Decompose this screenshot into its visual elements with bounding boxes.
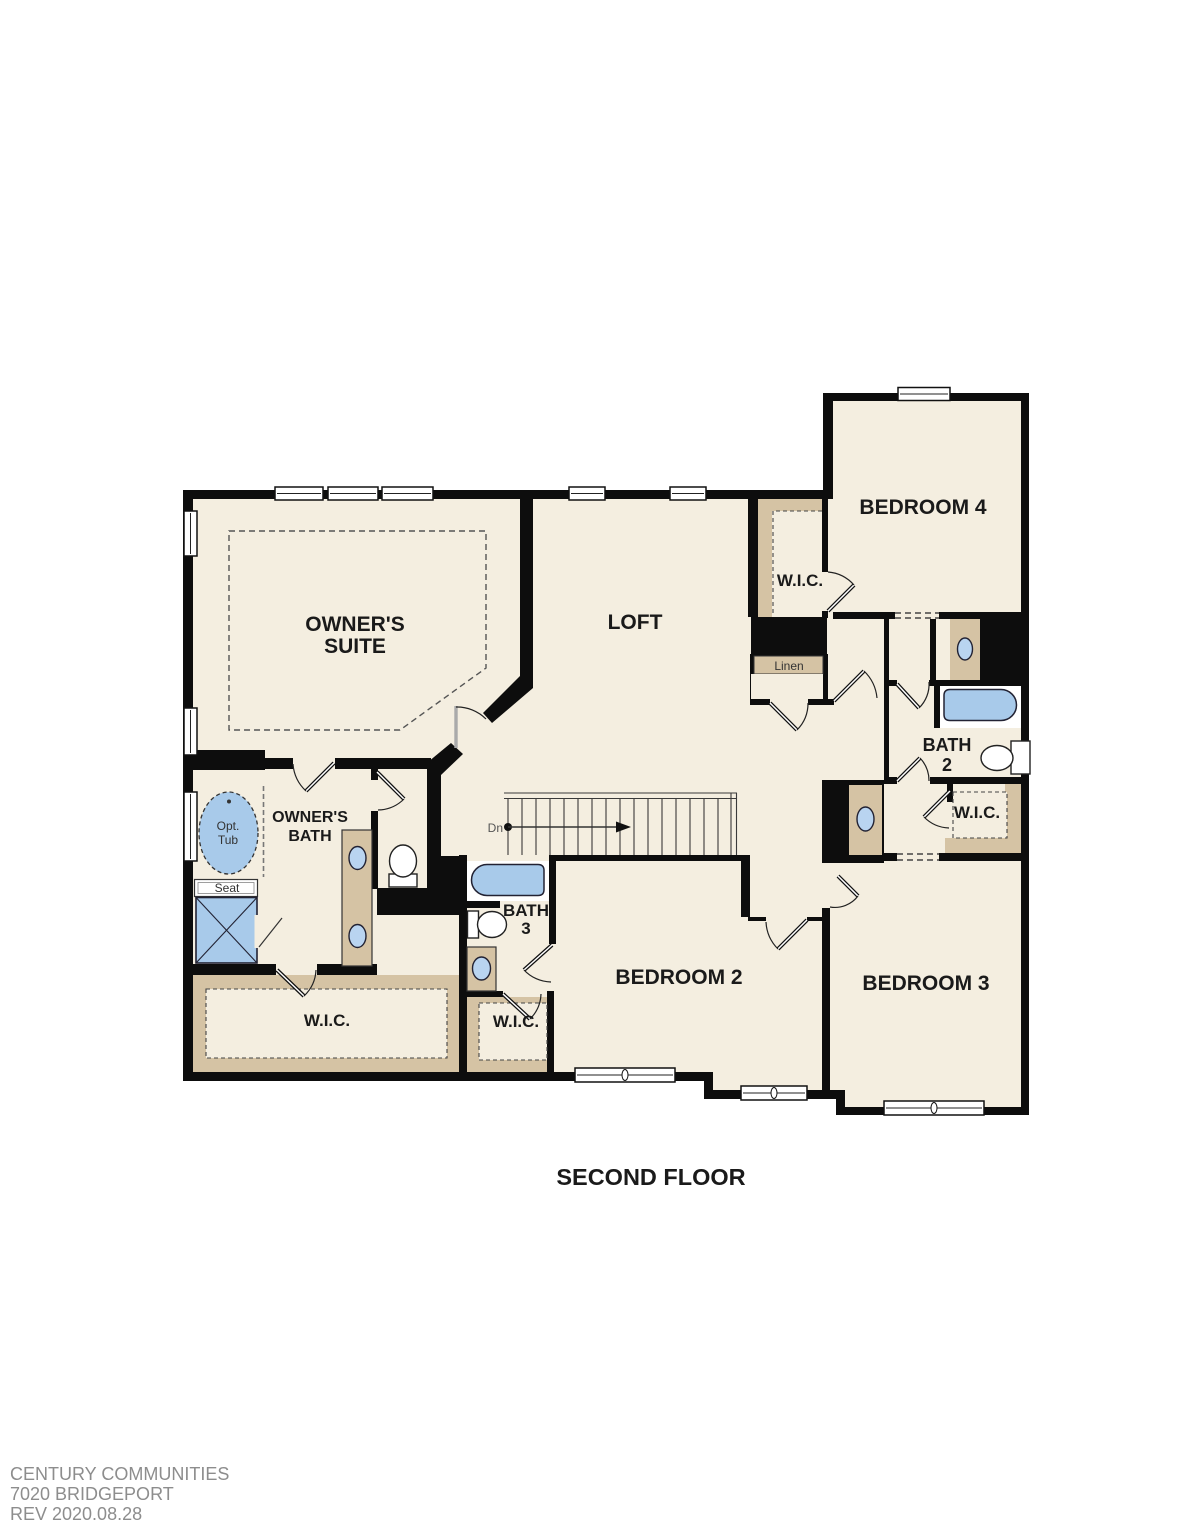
svg-text:OWNER'S: OWNER'S [272,809,348,826]
svg-text:BEDROOM 2: BEDROOM 2 [615,966,742,989]
svg-text:3: 3 [521,919,530,938]
svg-text:BEDROOM 3: BEDROOM 3 [862,972,989,995]
svg-text:Dn: Dn [488,821,503,835]
svg-text:BATH: BATH [503,901,549,920]
svg-text:LOFT: LOFT [608,611,663,634]
svg-text:CENTURY COMMUNITIES: CENTURY COMMUNITIES [10,1464,229,1484]
svg-text:BATH: BATH [288,828,331,845]
svg-text:Seat: Seat [215,881,240,895]
svg-text:BATH: BATH [923,735,972,755]
svg-text:OWNER'S: OWNER'S [305,613,405,636]
svg-text:Tub: Tub [218,833,239,847]
svg-text:SUITE: SUITE [324,635,386,658]
svg-text:W.I.C.: W.I.C. [777,571,823,590]
svg-text:Opt.: Opt. [217,819,240,833]
svg-text:7020 BRIDGEPORT: 7020 BRIDGEPORT [10,1484,174,1504]
svg-text:BEDROOM 4: BEDROOM 4 [859,496,987,519]
svg-text:SECOND FLOOR: SECOND FLOOR [556,1164,745,1190]
svg-text:W.I.C.: W.I.C. [304,1011,350,1030]
svg-text:W.I.C.: W.I.C. [493,1012,539,1031]
svg-text:REV 2020.08.28: REV 2020.08.28 [10,1504,142,1524]
svg-text:2: 2 [942,755,952,775]
svg-text:W.I.C.: W.I.C. [954,803,1000,822]
svg-text:Linen: Linen [774,659,803,673]
